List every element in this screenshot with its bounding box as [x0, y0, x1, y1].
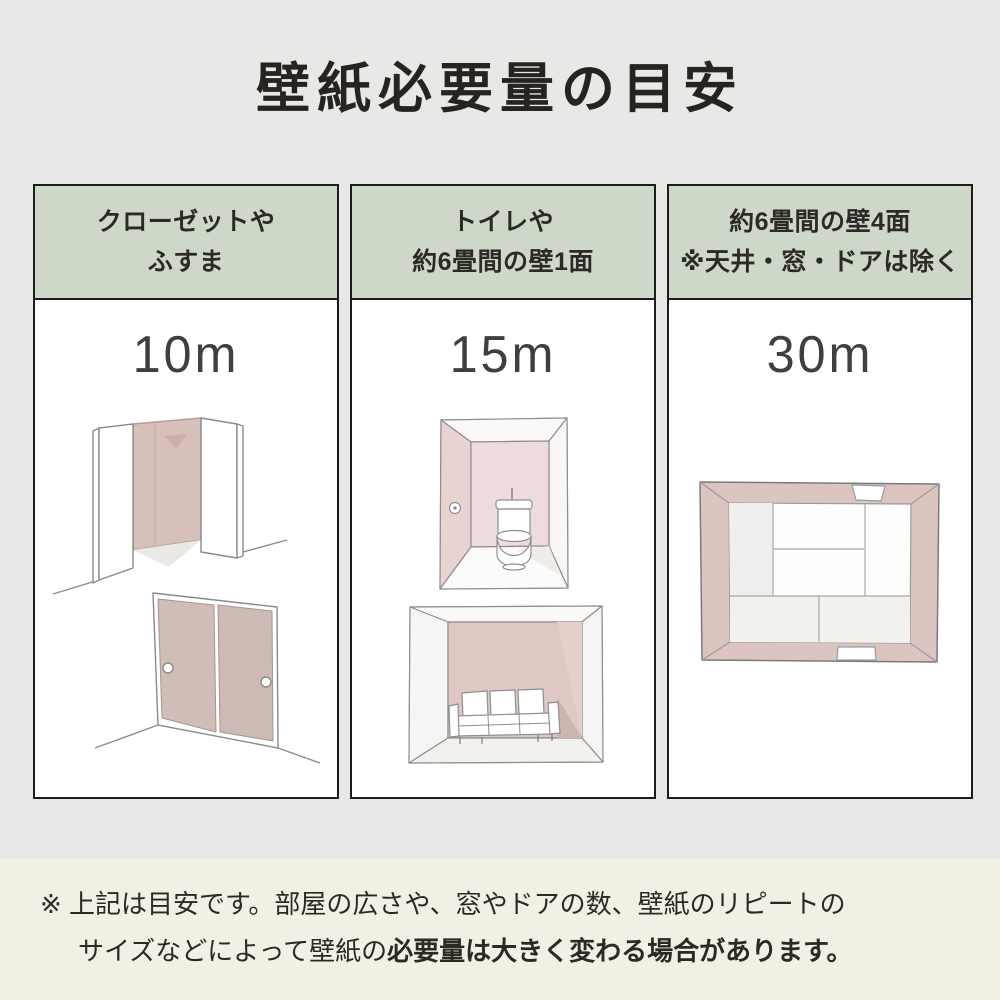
disclaimer-line1: ※ 上記は目安です。部屋の広さや、窓やドアの数、壁紙のリピートの	[78, 881, 980, 928]
meters-value: 15m	[357, 300, 650, 410]
column-closet-fusuma: クローゼットや ふすま 10m	[33, 184, 339, 799]
header-line: 約6畳間の壁1面	[412, 242, 594, 282]
meters-value: 10m	[40, 300, 333, 410]
estimate-columns: クローゼットや ふすま 10m	[33, 184, 973, 799]
toilet-room-illustration	[352, 410, 654, 795]
disclaimer-text: ※ 上記は目安です。部屋の広さや、窓やドアの数、壁紙のリピートの サイズなどによ…	[0, 859, 1000, 975]
column-toilet-one-wall: トイレや 約6畳間の壁1面 15m	[350, 184, 656, 799]
disclaimer-bold-text: 必要量は大きく変わる場合があります。	[387, 936, 852, 966]
disclaimer-band: ※ 上記は目安です。部屋の広さや、窓やドアの数、壁紙のリピートの サイズなどによ…	[0, 859, 1000, 1000]
closet-fusuma-illustration	[35, 410, 337, 795]
room-one-accent-wall-icon	[409, 606, 603, 763]
tatami-room-illustration-area	[669, 410, 971, 797]
column-four-walls: 約6畳間の壁4面 ※天井・窓・ドアは除く 30m	[667, 184, 973, 799]
page-title: 壁紙必要量の目安	[0, 54, 1000, 124]
tatami-room-illustration	[669, 410, 971, 795]
meters-value: 30m	[674, 300, 967, 410]
closet-fusuma-illustration-area	[35, 410, 337, 797]
header-line: ふすま	[148, 242, 225, 282]
header-line: トイレや	[452, 202, 554, 242]
column-four-walls-header: 約6畳間の壁4面 ※天井・窓・ドアは除く	[669, 186, 971, 300]
toilet-room-illustration-area	[352, 410, 654, 797]
open-closet-icon	[53, 418, 287, 594]
disclaimer-line2: サイズなどによって壁紙の必要量は大きく変わる場合があります。	[78, 928, 980, 975]
header-line: 約6畳間の壁4面	[729, 202, 911, 242]
header-line: クローゼットや	[97, 202, 276, 242]
fusuma-sliding-doors-icon	[95, 593, 320, 763]
tatami-room-four-walls-icon	[700, 482, 939, 662]
header-line: ※天井・窓・ドアは除く	[680, 242, 960, 282]
column-closet-header: クローゼットや ふすま	[35, 186, 337, 300]
column-toilet-header: トイレや 約6畳間の壁1面	[352, 186, 654, 300]
toilet-room-icon	[440, 418, 568, 589]
note-asterisk-marker: ※	[40, 889, 62, 919]
